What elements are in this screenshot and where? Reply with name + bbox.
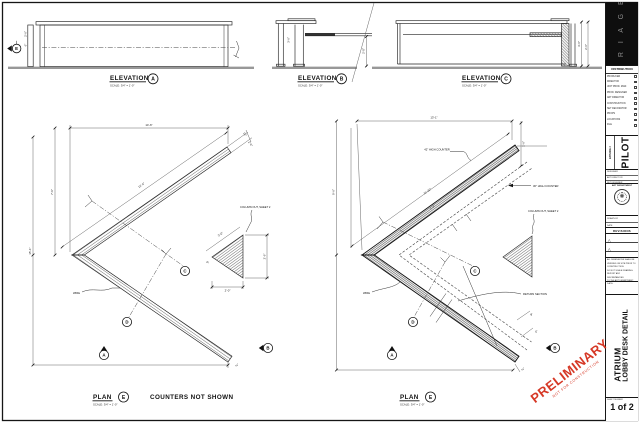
- plan-left-label: PLAN SCALE: 3/4" = 1'-0" E COUNTERS NOT …: [93, 392, 234, 407]
- checkbox: [634, 81, 637, 84]
- view-label: ELEVATION: [462, 75, 501, 82]
- dim-label: 2'-0": [361, 48, 365, 54]
- svg-text:D: D: [125, 320, 128, 325]
- distribution-section: DISTRIBUTION PRODUCER DIRECTOR UNIT PROD…: [606, 66, 638, 136]
- scale-label: SCALE: 3/4" = 1'-0": [400, 403, 424, 407]
- detail-marker-d: D: [122, 317, 131, 326]
- dim-label: 6": [534, 329, 538, 334]
- dim-label: 1'-6": [522, 141, 526, 147]
- dim-label: 2'-6": [263, 254, 267, 260]
- logo-text: T R I A G E: [619, 2, 626, 66]
- view-label: PLAN: [400, 394, 419, 401]
- view-label: ELEVATION: [110, 75, 149, 82]
- revision-row: △: [606, 243, 638, 252]
- plan-left: 14'-6" 15'-1" 7'-9" 12'-4" 10" 2'-0" ¾" …: [28, 123, 273, 407]
- scale-label: SCALE: 3/4" = 1'-0": [298, 83, 322, 87]
- revision-row: △: [606, 234, 638, 243]
- seal-section: ART DEPARTMENT ✺: [606, 184, 638, 216]
- elevation-b: 2'-0" 3'-6" ELEVATION B SCALE: 3/4" = 1'…: [272, 3, 374, 87]
- view-marker-b: B: [259, 343, 273, 352]
- dim-label: 9": [529, 312, 533, 317]
- view-label: ELEVATION: [298, 75, 337, 82]
- dim-label: 10": [242, 131, 248, 137]
- plan-right-label: PLAN SCALE: 3/4" = 1'-0" E: [400, 392, 436, 407]
- dim-label: 2'-0": [247, 140, 254, 147]
- plan-right: 13'-1" 9'-6" 11'-10" 1'-6" 1'-3" 9" 6" ¾…: [332, 116, 560, 407]
- svg-text:E: E: [15, 46, 18, 51]
- elevation-b-label: ELEVATION B SCALE: 3/4" = 1'-0": [298, 74, 347, 88]
- dim-label: 7'-9": [50, 189, 54, 195]
- dim-label: 3'-6": [287, 37, 291, 43]
- dim-label: 2'-6": [24, 31, 28, 37]
- dim-label: 11'-10": [423, 187, 432, 195]
- counter-height-note: 42" HIGH COUNTER: [424, 148, 450, 152]
- checkbox: [634, 113, 637, 116]
- sheet-number-value: 1 of 2: [606, 402, 638, 412]
- elevation-a: 2'-6" 6" E ELEVATION A SCALE: 3/4" = 1'-…: [7, 22, 254, 88]
- elevation-a-label: ELEVATION A SCALE: 3/4" = 1'-0": [110, 74, 159, 88]
- dim-label: 6": [205, 260, 210, 264]
- revisions-rows: △ △ △: [606, 234, 638, 258]
- sheet-number-box: SHEET NUMBER 1 of 2: [606, 398, 638, 421]
- svg-text:B: B: [266, 346, 269, 351]
- column-out-note: COLUMN OUT, SHEET 2: [528, 209, 559, 213]
- episode-section: EPISODE # PILOT: [606, 136, 638, 170]
- counters-note: COUNTERS NOT SHOWN: [150, 394, 234, 401]
- distribution-header: DISTRIBUTION: [606, 66, 638, 74]
- svg-text:B: B: [340, 77, 344, 83]
- svg-text:A: A: [151, 77, 155, 83]
- checkbox: [634, 108, 637, 111]
- view-marker-b: B: [546, 343, 560, 352]
- show-logo: T R I A G E: [606, 2, 638, 66]
- svg-text:B: B: [553, 346, 556, 351]
- seal-stamp: ✺: [614, 189, 630, 205]
- title-block: T R I A G E DISTRIBUTION PRODUCER DIRECT…: [605, 2, 638, 421]
- wire-note: WIRE: [73, 291, 80, 295]
- checkbox: [634, 92, 637, 95]
- checkbox: [634, 124, 637, 127]
- dim-label: ¾": [234, 363, 239, 368]
- info-rows: DESIGNER ART DIRECTOR SET DESIGNER: [606, 170, 638, 184]
- dim-label: 15'-1": [28, 247, 32, 254]
- dim-label: 2'-6": [584, 44, 588, 50]
- detail-marker-d: D: [408, 317, 417, 326]
- scale-label: SCALE: 3/4" = 1'-0": [93, 403, 117, 407]
- sheet-title-line1: ATRIUM: [613, 310, 622, 382]
- drawing-sheet: 2'-6" 6" E ELEVATION A SCALE: 3/4" = 1'-…: [0, 0, 640, 423]
- elevation-c: 3'-6" 2'-6" ELEVATION C SCALE: 3/4" = 1'…: [372, 19, 602, 88]
- view-label: PLAN: [93, 394, 112, 401]
- sheet-title: ATRIUM LOBBY DESK DETAIL: [613, 310, 630, 382]
- dim-label: 6": [24, 44, 28, 47]
- scale-label: SCALE: 3/4" = 1'-0": [462, 83, 486, 87]
- signature-row: DRAWN BY: [606, 216, 638, 223]
- section-marker-e: E: [7, 41, 21, 53]
- detail-marker-c: C: [180, 266, 189, 275]
- dim-label: 13'-1": [430, 116, 437, 120]
- view-marker-a: A: [387, 346, 396, 360]
- general-notes: ALL DIMENSIONS SHALL BE VERIFIED ON SITE…: [606, 258, 638, 282]
- column-out-note: COLUMN OUT, SHEET 2: [240, 205, 271, 209]
- distribution-row: FILE: [606, 123, 638, 128]
- dim-label: 9'-6": [332, 189, 336, 195]
- checkbox: [634, 119, 637, 122]
- seal-header: ART DEPARTMENT: [606, 184, 638, 188]
- sheet-number-label: SHEET NUMBER: [606, 398, 638, 401]
- checkbox: [634, 75, 637, 78]
- sheet-title-line2: LOBBY DESK DETAIL: [623, 310, 631, 382]
- elevation-c-label: ELEVATION C SCALE: 3/4" = 1'-0": [462, 74, 512, 88]
- dim-label: 3'-6": [577, 41, 581, 47]
- column-detail-right: [503, 236, 532, 277]
- sheet-title-box: ATRIUM LOBBY DESK DETAIL: [606, 295, 638, 398]
- column-detail-left: 2'-6" 2'-0" 3'-0" 6" COLUMN OUT, SHEET 2: [205, 205, 271, 293]
- drawing-canvas: 2'-6" 6" E ELEVATION A SCALE: 3/4" = 1'-…: [0, 0, 640, 423]
- seal-ornament-icon: ✺: [619, 194, 624, 200]
- view-marker-a: A: [99, 346, 108, 360]
- signature-rows: DRAWN BY DATE: [606, 216, 638, 228]
- scale-label: SCALE: 3/4" = 1'-0": [110, 83, 134, 87]
- svg-text:D: D: [411, 320, 414, 325]
- dim-label: 3'-0": [217, 231, 224, 238]
- svg-text:C: C: [504, 77, 508, 83]
- return-section-note: RETURN SECTION: [523, 292, 547, 296]
- dim-label: 14'-6": [145, 123, 152, 127]
- detail-marker-c: C: [470, 266, 479, 275]
- counter-height-note: 30" HIGH COUNTER: [533, 184, 559, 188]
- checkbox: [634, 97, 637, 100]
- checkbox: [634, 102, 637, 105]
- wire-note: WIRE: [363, 291, 370, 295]
- episode-value-box: PILOT: [614, 136, 638, 169]
- checkbox: [634, 86, 637, 89]
- dim-label: ¾": [520, 367, 525, 372]
- dim-label: 2'-0": [225, 289, 231, 293]
- dim-label: 12'-4": [137, 181, 145, 189]
- date-box: DATE:: [606, 282, 638, 295]
